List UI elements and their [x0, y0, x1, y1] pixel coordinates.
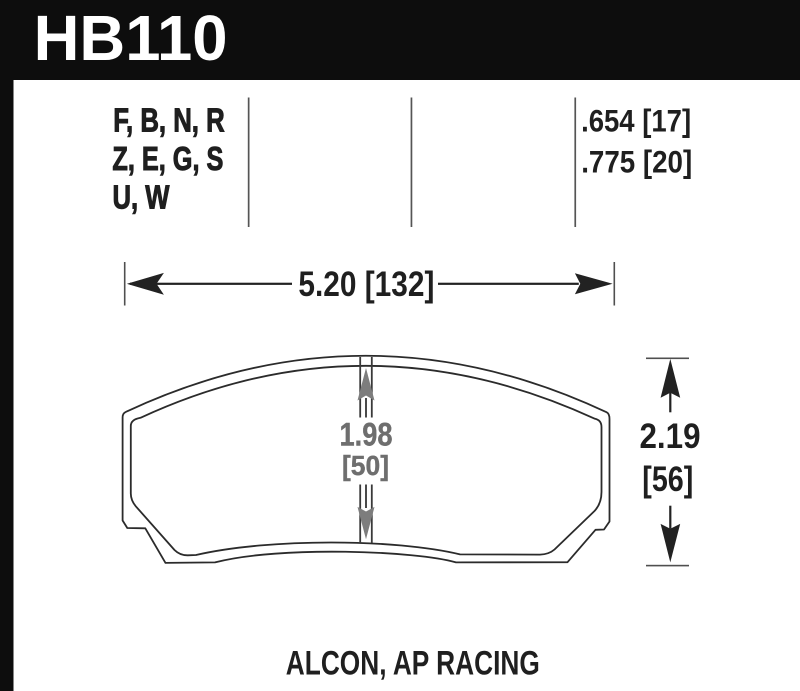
svg-text:HB110: HB110	[34, 2, 228, 74]
svg-text:[56]: [56]	[642, 460, 693, 499]
svg-text:F, B, N, R: F, B, N, R	[113, 102, 225, 139]
svg-text:2.19: 2.19	[640, 417, 701, 456]
svg-text:U, W: U, W	[113, 178, 171, 215]
svg-text:.775 [20]: .775 [20]	[581, 144, 692, 180]
svg-text:Z, E, G, S: Z, E, G, S	[112, 140, 223, 177]
svg-text:.654 [17]: .654 [17]	[581, 103, 691, 139]
svg-text:ALCON, AP RACING: ALCON, AP RACING	[286, 645, 540, 683]
svg-text:1.98: 1.98	[340, 416, 393, 453]
svg-text:5.20 [132]: 5.20 [132]	[298, 265, 434, 304]
svg-text:[50]: [50]	[342, 450, 389, 481]
